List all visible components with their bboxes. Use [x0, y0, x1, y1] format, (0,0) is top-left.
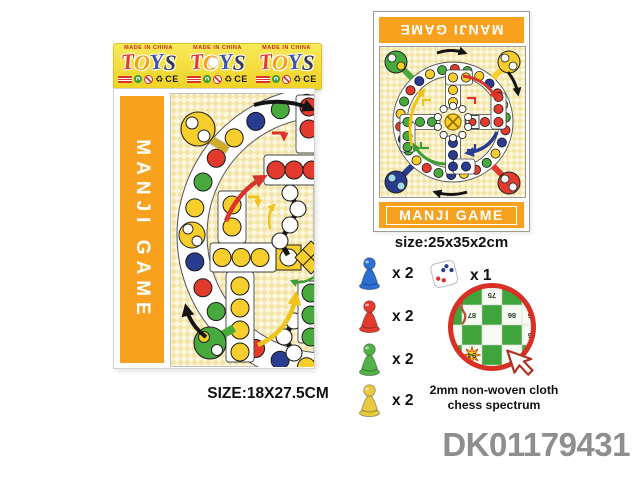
right-size-caption: size:25x35x2cm: [373, 234, 530, 251]
green-dot-icon: [203, 75, 211, 83]
blue-pawn-icon: [356, 257, 383, 290]
hang-hole: [208, 57, 219, 68]
ce-mark: CE: [165, 74, 179, 84]
right-top-banner: MANJI GAME: [379, 17, 524, 43]
center-hub: [445, 114, 461, 130]
detail-caption-line2: chess spectrum: [416, 398, 572, 413]
cloth-cell: [482, 325, 502, 345]
detail-caption: 2mm non-woven cloth chess spectrum: [416, 383, 572, 412]
cloth-cell-number: 75: [488, 291, 496, 300]
board-dot: [400, 97, 409, 106]
board-dot: [459, 106, 466, 113]
toys-strip-unit: MADE IN CHINATOYS♻CE: [114, 44, 183, 89]
cloth-cell: [462, 325, 482, 345]
toys-logo: TOYS: [259, 51, 314, 73]
warning-label-icon: [118, 76, 132, 83]
pawn-row-red: x 2: [356, 300, 414, 333]
green-dot-icon: [134, 75, 142, 83]
detail-caption-line1: 2mm non-woven cloth: [416, 383, 572, 398]
red-pawn-icon: [356, 300, 383, 333]
board-dot: [449, 134, 456, 141]
pawn-row-green: x 2: [356, 343, 414, 376]
ce-mark: CE: [303, 74, 317, 84]
board-dot: [497, 138, 506, 147]
red-pawn-qty: x 2: [392, 308, 414, 326]
warning-label-icon: [187, 76, 201, 83]
left-band-title: MANJI GAME: [131, 139, 153, 320]
green-path: [298, 281, 314, 346]
board-dot: [434, 114, 441, 121]
board-dot: [412, 156, 421, 165]
blue-pawn-qty: x 2: [392, 265, 414, 283]
warning-label-icon: [256, 76, 270, 83]
board-dot: [482, 158, 491, 167]
pawn-row-yellow: x 2: [356, 384, 414, 417]
board-dot: [186, 253, 204, 271]
age-warning-icon: [144, 75, 153, 84]
product-code: DK01179431: [420, 426, 630, 464]
ring-embedded-piece: [179, 222, 205, 248]
board-dot: [415, 77, 424, 86]
board-dot: [194, 173, 212, 191]
left-package: MANJI GAME: [113, 88, 315, 369]
toys-letter: S: [301, 52, 315, 75]
green-pawn-qty: x 2: [392, 351, 414, 369]
left-game-board: [170, 93, 314, 367]
age-warning-icon: [282, 75, 291, 84]
toys-strip-unit: MADE IN CHINATOYS♻CE: [252, 44, 321, 89]
green-dot-icon: [272, 75, 280, 83]
yellow-pawn-icon: [356, 384, 383, 417]
right-game-board: [379, 46, 526, 198]
left-side-band: MANJI GAME: [120, 96, 164, 363]
yellow-pawn-qty: x 2: [392, 392, 414, 410]
board-dot: [186, 199, 204, 217]
board-dot: [422, 163, 431, 172]
toys-logo: TOYS: [121, 51, 176, 73]
toys-strip-units: MADE IN CHINATOYS♻CEMADE IN CHINATOYS♻CE…: [114, 44, 321, 89]
cloth-cell-number: 86: [508, 311, 516, 320]
board-dot: [459, 131, 466, 138]
board-dot: [207, 303, 225, 321]
board-dot: [440, 131, 447, 138]
pawn-row-blue: x 2: [356, 257, 414, 290]
cloth-cell-number: 87: [468, 311, 476, 320]
recycle-icon: ♻: [224, 75, 232, 84]
board-dot: [440, 106, 447, 113]
ce-mark: CE: [234, 74, 248, 84]
board-dot: [449, 102, 456, 109]
board-dot: [434, 168, 443, 177]
board-dot: [406, 86, 415, 95]
left-size-caption: SIZE:18X27.5CM: [178, 385, 358, 403]
product-sheet: MADE IN CHINATOYS♻CEMADE IN CHINATOYS♻CE…: [0, 0, 640, 480]
board-dot: [434, 123, 441, 130]
recycle-icon: ♻: [293, 75, 301, 84]
age-warning-icon: [213, 75, 222, 84]
cloth-cell-number: 8: [450, 291, 454, 300]
board-dot: [194, 279, 212, 297]
cloth-cell: [482, 345, 502, 365]
board-dot: [225, 129, 243, 147]
toys-strip-unit: MADE IN CHINATOYS♻CE: [183, 44, 252, 89]
recycle-icon: ♻: [155, 75, 163, 84]
green-pawn-icon: [356, 343, 383, 376]
board-dot: [247, 112, 265, 130]
board-dot: [425, 70, 434, 79]
cloth-cell: [482, 305, 502, 325]
board-dot: [491, 149, 500, 158]
board-dot: [465, 114, 472, 121]
right-bottom-banner: MANJI GAME: [379, 202, 524, 228]
right-top-banner-label: MANJI GAME: [399, 22, 503, 38]
toys-letter: S: [163, 52, 177, 75]
toys-letter: S: [232, 52, 246, 75]
toys-header-strip: MADE IN CHINATOYS♻CEMADE IN CHINATOYS♻CE…: [113, 43, 322, 90]
right-bottom-banner-label: MANJI GAME: [386, 206, 516, 225]
board-dot: [465, 123, 472, 130]
cursor-arrow-icon: [505, 342, 547, 384]
right-panel: MANJI GAME: [373, 11, 530, 232]
